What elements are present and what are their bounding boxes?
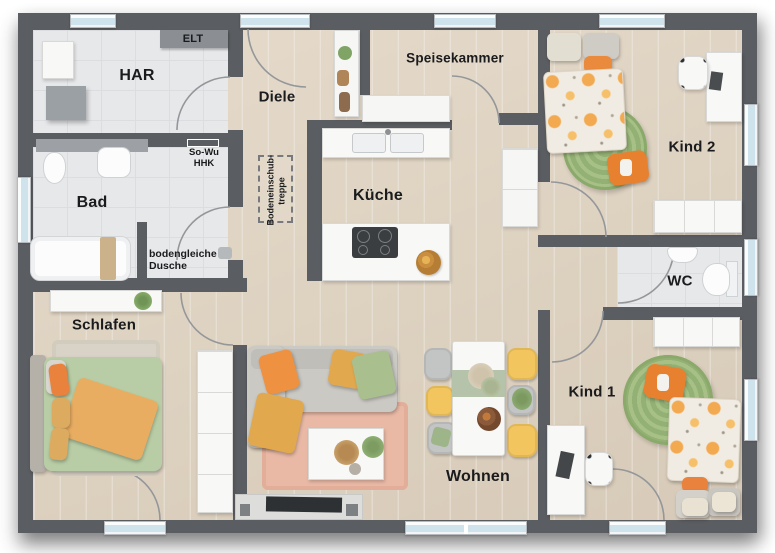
wardrobe-schlafen [197, 350, 233, 513]
attic-ladder-label-line2: treppe [276, 177, 286, 205]
attic-ladder-marker: Bodeneinschub- treppe [258, 155, 293, 223]
room-label-kueche: Küche [353, 187, 403, 205]
bathtub-tray [100, 237, 116, 280]
pillow [547, 33, 581, 61]
burner [358, 245, 368, 255]
annotation-sowu: So-Wu [189, 147, 219, 158]
kitchen-sink [352, 133, 386, 153]
dining-chair-gray [424, 348, 452, 380]
floor-plan: Bodeneinschub- treppe HAR ELT Diele Spei… [0, 0, 775, 553]
plant-diele [338, 46, 352, 60]
plush-toy [657, 374, 669, 391]
wall-niche [187, 139, 219, 147]
wardrobe-kind1 [653, 317, 740, 347]
utility-box [46, 86, 86, 120]
pillow [48, 427, 69, 461]
decor-diele [339, 92, 350, 112]
plant-schlafen [134, 292, 152, 310]
room-label-kind1: Kind 1 [568, 384, 615, 401]
burner [380, 245, 390, 255]
dining-chair-yellow [507, 348, 537, 380]
sink-bad [97, 147, 131, 178]
coffee-table-plant [362, 436, 384, 458]
annotation-dusche-word: Dusche [149, 260, 187, 272]
bed-kind1 [667, 397, 742, 483]
room-label-kind2: Kind 2 [668, 139, 715, 156]
bed-kind2 [543, 68, 627, 154]
cooktop [352, 227, 398, 258]
room-label-speisekammer: Speisekammer [406, 51, 504, 66]
coffee-table-tray [334, 440, 359, 465]
annotation-hhk: HHK [194, 158, 215, 169]
room-label-schlafen: Schlafen [72, 317, 136, 334]
annotation-sowu-hhk: So-Wu HHK [178, 147, 230, 169]
speaker [346, 504, 358, 516]
pillow [52, 398, 70, 428]
plush-toy [620, 159, 632, 176]
low-cabinet-kind2 [653, 200, 742, 233]
room-label-diele: Diele [259, 89, 296, 106]
shower-head [218, 247, 232, 259]
kitchen-sink [390, 133, 424, 153]
coffee-table-vase [349, 463, 361, 475]
room-label-wohnen: Wohnen [446, 468, 510, 486]
pillow [682, 498, 708, 516]
annotation-dusche: bodengleiche Dusche [149, 248, 219, 273]
monitor-kind2 [709, 71, 723, 90]
decor-diele [337, 70, 349, 86]
desk-chair-kind1 [585, 452, 613, 486]
room-label-wc: WC [667, 273, 692, 290]
bath-vanity [36, 139, 148, 152]
toilet-wc [702, 263, 730, 296]
room-label-bad: Bad [77, 194, 108, 212]
dining-table [452, 341, 505, 456]
pillow [712, 492, 736, 512]
snack-bowl [477, 407, 501, 431]
dining-chair-yellow [507, 424, 537, 457]
burner [357, 230, 370, 243]
chair-plant [512, 388, 532, 410]
room-label-elt: ELT [183, 33, 204, 45]
attic-ladder-label-line1: Bodeneinschub- [266, 155, 276, 226]
washing-machine [42, 41, 74, 79]
desk-chair-kind2 [678, 56, 708, 90]
tv [266, 496, 342, 512]
annotation-bodengleiche: bodengleiche [149, 248, 217, 260]
table-flowers [481, 377, 501, 397]
speaker [240, 504, 250, 516]
burner [378, 229, 392, 243]
fruit-bowl [416, 250, 441, 275]
kitchen-faucet [385, 129, 391, 135]
dining-chair-yellow [426, 386, 454, 416]
toilet-bad [43, 152, 66, 184]
room-label-har: HAR [119, 67, 154, 85]
